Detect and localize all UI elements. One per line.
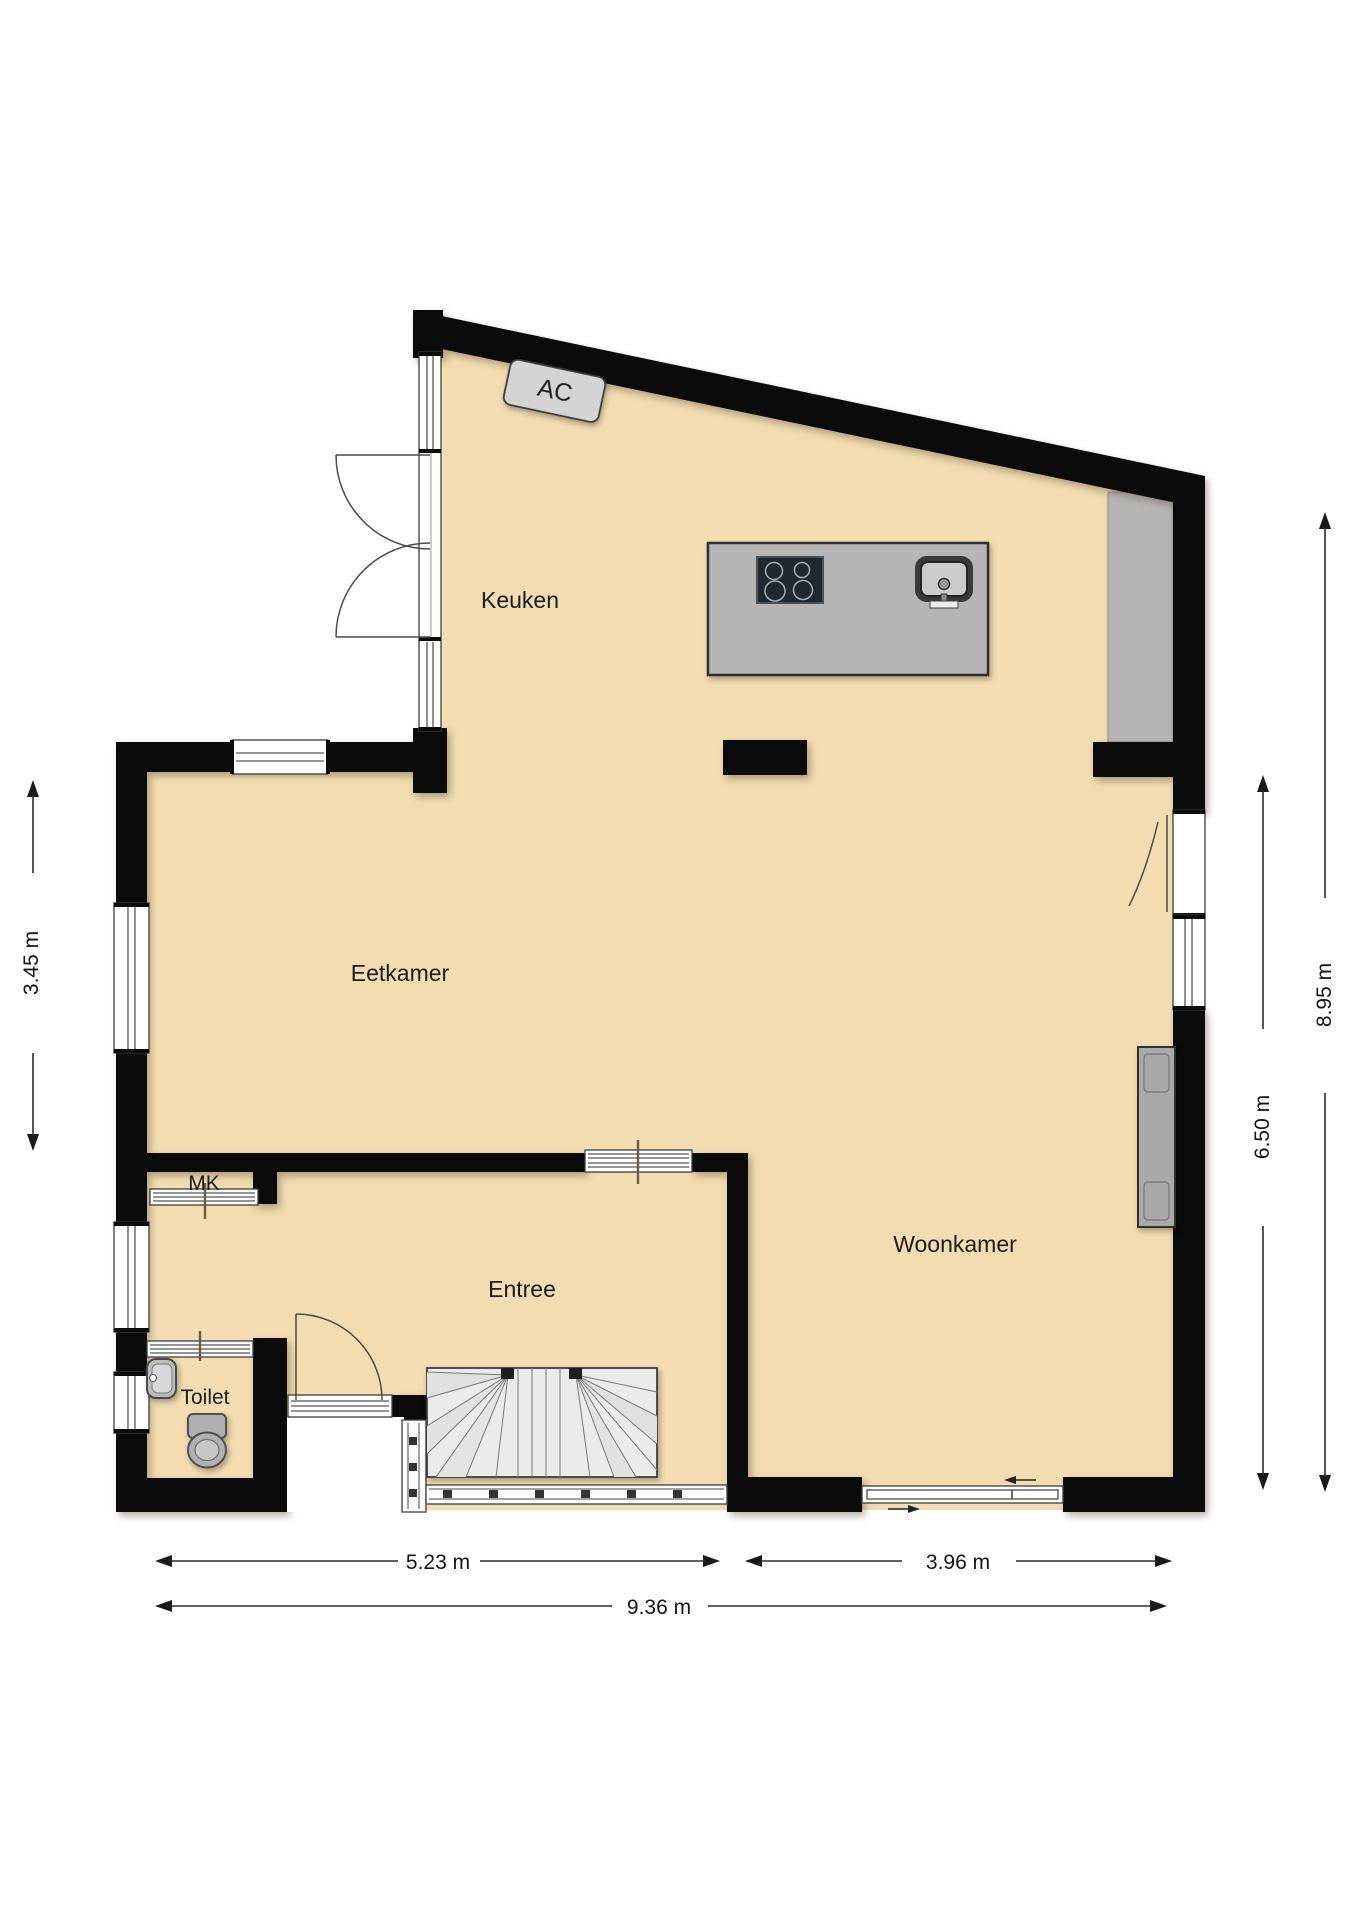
wall-keuken-stub [723, 740, 807, 775]
wall-entree-woonkamer [727, 1172, 748, 1512]
dimension-right-inner-height: 6.50 m [1251, 775, 1274, 1490]
svg-text:3.45 m: 3.45 m [20, 931, 43, 995]
svg-text:5.23 m: 5.23 m [406, 1551, 470, 1574]
kitchen-counter [1108, 492, 1173, 742]
window-left-3 [114, 1372, 149, 1433]
floor-area [118, 316, 1203, 1510]
wall-woonkamer-bottom-right [1063, 1477, 1205, 1512]
floorplan-page: AC Keuken Eetkamer Woonkamer Entree Toil… [0, 0, 1358, 1920]
svg-text:6.50 m: 6.50 m [1251, 1095, 1274, 1159]
wall-eetkamer-entree-corner [692, 1153, 748, 1172]
room-label-eetkamer: Eetkamer [351, 960, 450, 986]
dimension-bottom-left-width: 5.23 m [155, 1551, 720, 1574]
porch-recess [287, 1417, 404, 1512]
wall-eetkamer-entree [147, 1153, 585, 1172]
french-doors [336, 455, 430, 637]
sink-icon [915, 556, 973, 608]
room-label-mk: MK [188, 1172, 220, 1195]
radiator [1138, 1047, 1175, 1227]
wall-woonkamer-bottom-left [727, 1477, 862, 1512]
floorplan-drawing: AC Keuken Eetkamer Woonkamer Entree Toil… [0, 0, 1358, 1920]
wall-kitchenleft-bottom-corner [413, 728, 447, 793]
wall-bottom-left [116, 1478, 287, 1512]
toilet-fixture-icon [188, 1414, 226, 1468]
kitchen-left-frame [419, 352, 441, 731]
room-label-toilet: Toilet [180, 1386, 229, 1409]
room-label-entree: Entree [488, 1276, 556, 1302]
kitchen-island [708, 543, 988, 675]
right-wall-window [1173, 915, 1205, 1010]
room-label-keuken: Keuken [481, 587, 559, 613]
washbasin-icon [147, 1359, 176, 1398]
stair-newel-left [501, 1368, 514, 1379]
dimension-left-height: 3.45 m [20, 780, 43, 1151]
svg-text:3.96 m: 3.96 m [926, 1551, 990, 1574]
window-left-1 [114, 903, 149, 1053]
stair-newel-right [569, 1368, 582, 1379]
eetkamer-top-window [230, 740, 330, 774]
stairs [427, 1368, 657, 1477]
dimension-bottom-right-width: 3.96 m [745, 1551, 1172, 1574]
dimension-bottom-total-width: 9.36 m [155, 1596, 1167, 1619]
room-label-woonkamer: Woonkamer [893, 1231, 1017, 1257]
svg-text:9.36 m: 9.36 m [627, 1596, 691, 1619]
svg-text:8.95 m: 8.95 m [1313, 963, 1336, 1027]
wall-right-lower [1173, 1008, 1205, 1478]
wall-keuken-right [1093, 742, 1205, 777]
cooktop-icon [757, 557, 823, 603]
dimension-right-outer-height: 8.95 m [1313, 512, 1336, 1492]
window-left-2 [114, 1222, 149, 1332]
wall-topleft-corner [413, 310, 443, 358]
